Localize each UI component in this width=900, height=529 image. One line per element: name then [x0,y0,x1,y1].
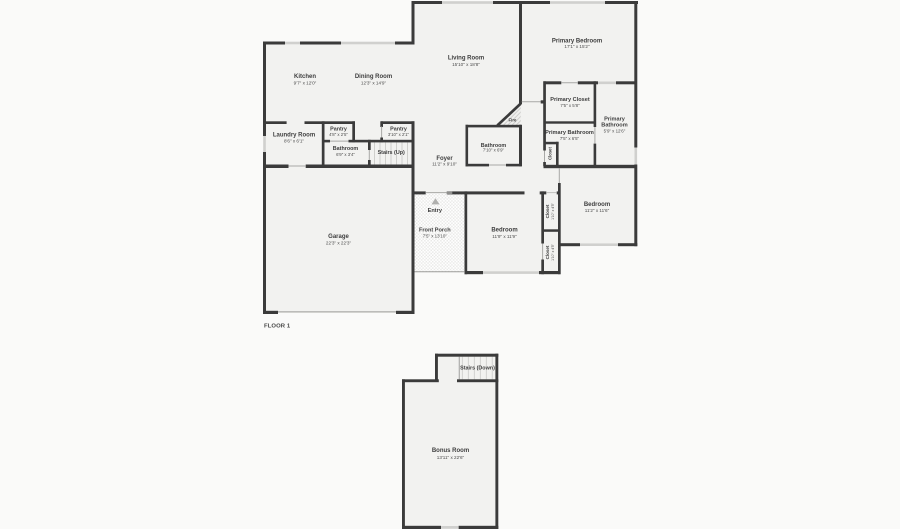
svg-text:Stairs (Down): Stairs (Down) [460,366,495,372]
svg-text:13'11" x 22'6": 13'11" x 22'6" [437,455,465,460]
svg-text:Closet: Closet [548,147,553,160]
svg-text:Garage: Garage [328,234,349,240]
svg-text:4'8" x 2'5": 4'8" x 2'5" [329,132,348,137]
svg-text:9'7" x 12'0": 9'7" x 12'0" [294,81,317,86]
svg-text:6'9" x 3'4": 6'9" x 3'4" [336,152,355,157]
svg-text:5'9" x 12'6": 5'9" x 12'6" [604,128,626,133]
svg-text:8'6" x 6'1": 8'6" x 6'1" [284,139,304,144]
svg-text:Stairs (Up): Stairs (Up) [378,150,405,156]
svg-text:FLOOR 1: FLOOR 1 [264,323,291,329]
svg-text:12'3" x 14'9": 12'3" x 14'9" [361,81,387,86]
svg-text:3'10" x 2'1": 3'10" x 2'1" [388,132,410,137]
svg-text:Entry: Entry [428,208,443,214]
svg-text:7'10" x 6'9": 7'10" x 6'9" [483,147,505,152]
svg-text:7'5" x 13'10": 7'5" x 13'10" [423,234,448,239]
svg-text:11'9" x 11'9": 11'9" x 11'9" [492,234,517,239]
svg-text:Bedroom: Bedroom [491,228,517,234]
svg-text:Dining Room: Dining Room [355,74,392,80]
svg-text:1'10" x 4'5": 1'10" x 4'5" [551,202,555,220]
svg-text:1'10" x 4'5": 1'10" x 4'5" [551,243,555,261]
svg-text:Fire: Fire [509,118,517,123]
svg-text:22'3" x 22'3": 22'3" x 22'3" [326,241,352,246]
svg-text:Living Room: Living Room [448,56,484,62]
svg-text:Closet: Closet [545,245,550,259]
svg-text:11'2" x 11'6": 11'2" x 11'6" [585,208,610,213]
svg-text:7'5" x 6'5": 7'5" x 6'5" [560,136,580,141]
svg-text:15'10" x 18'8": 15'10" x 18'8" [452,62,480,67]
svg-text:Kitchen: Kitchen [294,74,316,80]
svg-text:Bonus Room: Bonus Room [432,448,469,454]
svg-text:Closet: Closet [545,204,550,218]
svg-text:11'2" x 9'10": 11'2" x 9'10" [432,161,457,166]
svg-text:17'1" x 15'2": 17'1" x 15'2" [564,44,590,49]
svg-text:7'5" x 5'8": 7'5" x 5'8" [560,103,580,108]
